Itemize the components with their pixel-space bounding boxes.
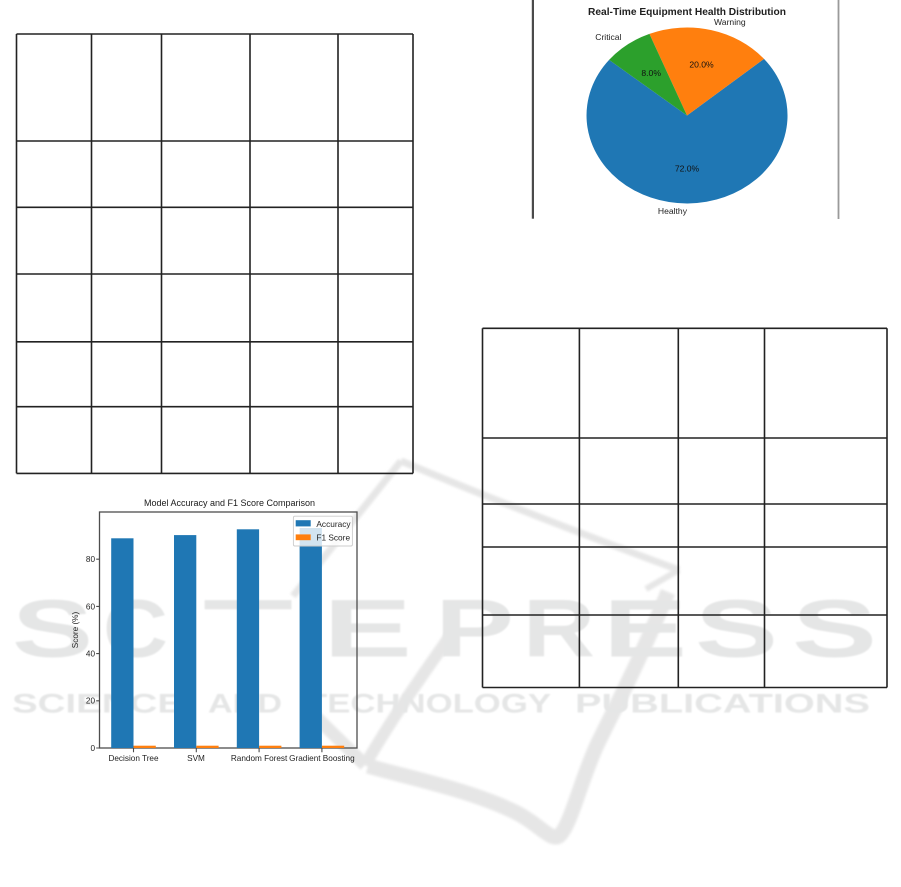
svg-text:P: P xyxy=(435,584,514,675)
svg-text:40: 40 xyxy=(86,650,96,659)
svg-text:S: S xyxy=(12,584,93,675)
svg-text:Real-Time Equipment Health Dis: Real-Time Equipment Health Distribution xyxy=(588,7,786,18)
svg-text:E: E xyxy=(603,584,687,675)
svg-text:TECHNOLOGY: TECHNOLOGY xyxy=(306,688,551,718)
svg-text:Accuracy: Accuracy xyxy=(316,519,351,529)
svg-text:Decision Tree: Decision Tree xyxy=(108,754,159,763)
svg-text:80: 80 xyxy=(86,555,96,564)
svg-text:Warning: Warning xyxy=(714,17,746,27)
svg-text:Healthy: Healthy xyxy=(658,206,688,216)
svg-text:72.0%: 72.0% xyxy=(675,163,700,173)
svg-text:8.0%: 8.0% xyxy=(641,68,661,78)
svg-text:E: E xyxy=(323,584,412,675)
svg-text:SVM: SVM xyxy=(187,754,205,763)
svg-text:Critical: Critical xyxy=(595,32,621,42)
svg-text:SCIENCE: SCIENCE xyxy=(12,688,183,718)
svg-text:Gradient Boosting: Gradient Boosting xyxy=(289,754,355,763)
svg-text:0: 0 xyxy=(90,744,95,753)
svg-text:Score (%): Score (%) xyxy=(71,612,80,649)
svg-text:Model Accuracy and F1 Score Co: Model Accuracy and F1 Score Comparison xyxy=(144,498,315,508)
svg-text:F1 Score: F1 Score xyxy=(316,533,350,543)
svg-text:S: S xyxy=(792,584,877,675)
svg-text:PUBLICATIONS: PUBLICATIONS xyxy=(575,688,870,718)
svg-text:S: S xyxy=(695,584,778,675)
svg-text:60: 60 xyxy=(86,602,96,611)
svg-text:R: R xyxy=(523,584,595,675)
svg-text:Random Forest: Random Forest xyxy=(231,754,288,763)
svg-text:20: 20 xyxy=(86,697,96,706)
svg-text:20.0%: 20.0% xyxy=(689,59,714,69)
